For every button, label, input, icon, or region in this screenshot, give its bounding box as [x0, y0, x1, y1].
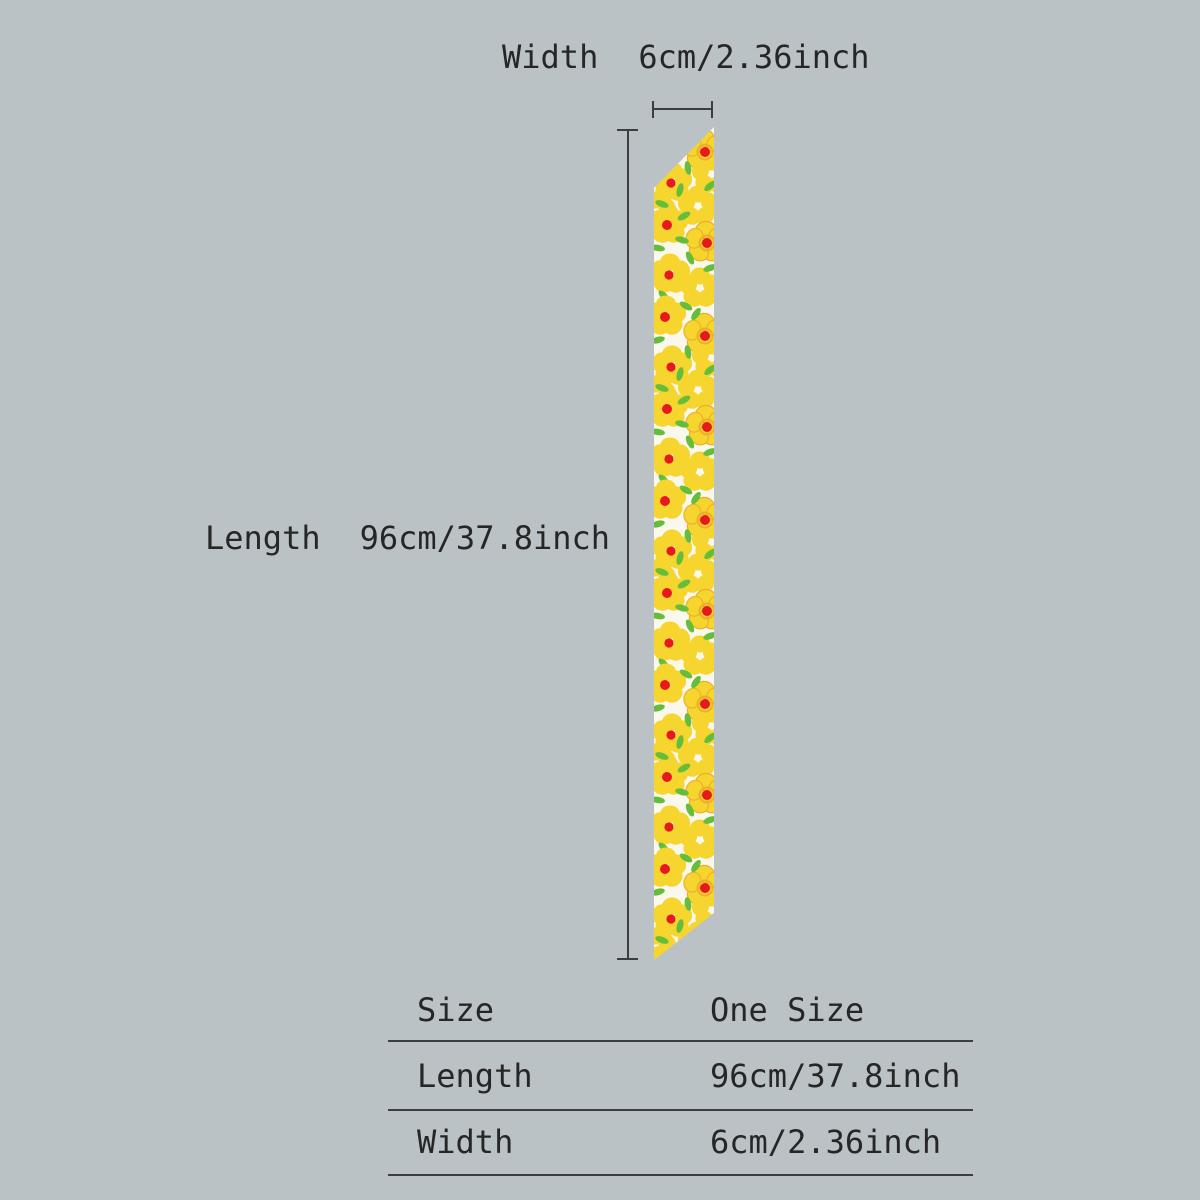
width-annotation: Width6cm/2.36inch	[502, 40, 870, 74]
table-row: Length 96cm/37.8inch	[388, 1058, 973, 1094]
length-annotation: Length96cm/37.8inch	[205, 521, 610, 555]
product-dimension-diagram: Width6cm/2.36inch Length96cm/37.8inch	[0, 0, 1200, 1200]
row-divider	[388, 1109, 973, 1111]
length-measure-line	[627, 130, 629, 960]
width-label: Width	[502, 38, 598, 76]
row-label: Length	[417, 1057, 533, 1095]
length-label: Length	[205, 519, 321, 557]
row-divider	[388, 1174, 973, 1176]
table-row: Width 6cm/2.36inch	[388, 1124, 973, 1160]
length-value: 96cm/37.8inch	[360, 521, 610, 555]
scarf-shape	[654, 127, 714, 960]
width-bracket-line	[653, 108, 713, 110]
row-label: Width	[417, 1123, 513, 1161]
width-bracket-tick-right	[711, 101, 713, 118]
row-value: 6cm/2.36inch	[710, 1124, 941, 1160]
width-value: 6cm/2.36inch	[638, 40, 869, 74]
size-table: Size One Size Length 96cm/37.8inch Width…	[388, 988, 973, 1184]
row-label: Size	[417, 991, 494, 1029]
width-bracket-tick-left	[652, 101, 654, 118]
length-measure-cap-bottom	[617, 958, 638, 960]
row-divider	[388, 1040, 973, 1042]
row-value: One Size	[710, 992, 864, 1028]
row-value: 96cm/37.8inch	[710, 1058, 960, 1094]
table-row: Size One Size	[388, 992, 973, 1028]
length-measure-cap-top	[617, 129, 638, 131]
scarf-graphic	[650, 120, 718, 965]
